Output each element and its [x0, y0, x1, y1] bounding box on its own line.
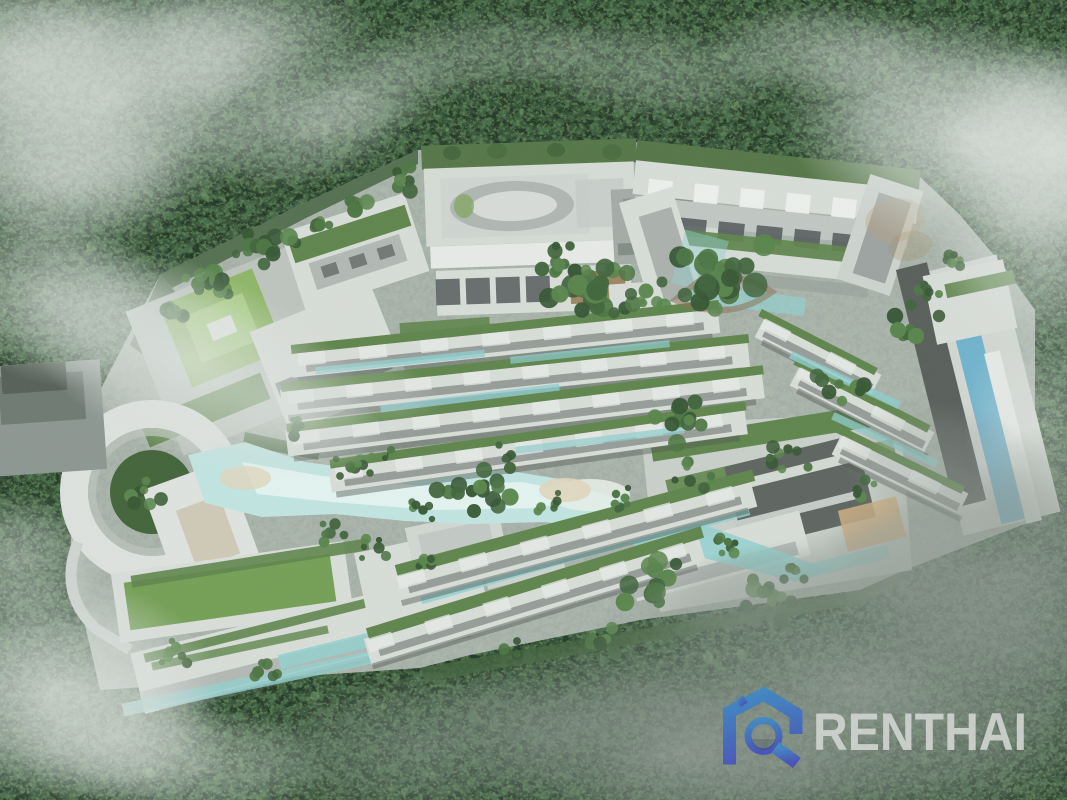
svg-text:RENTHAI: RENTHAI: [813, 703, 1027, 762]
